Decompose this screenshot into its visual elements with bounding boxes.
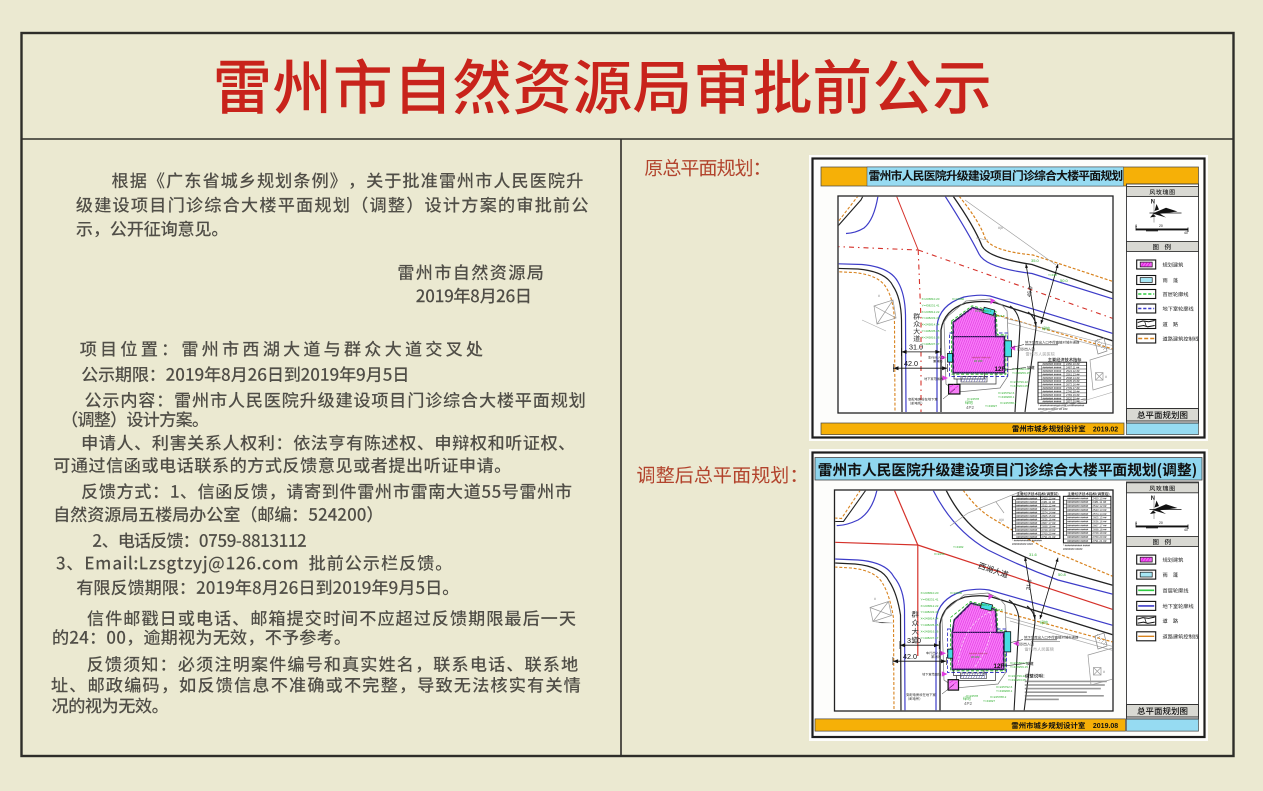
svg-text:Y=438231.41: Y=438231.41: [921, 597, 939, 601]
svg-text:####### #####: ####### #####: [1043, 366, 1062, 370]
svg-text:20: 20: [1159, 224, 1163, 228]
svg-text:42.0: 42.0: [903, 652, 917, 661]
svg-text:2561.13 ##: 2561.13 ##: [1066, 372, 1080, 376]
svg-text:2019.08: 2019.08: [1093, 723, 1118, 730]
svg-text:42.0: 42.0: [904, 359, 918, 368]
svg-text:## ###: ## ###: [971, 655, 980, 659]
svg-text:## ###: ## ###: [974, 359, 983, 363]
svg-text:Y=438263.05: Y=438263.05: [1008, 678, 1026, 682]
svg-text:4P2: 4P2: [966, 405, 975, 410]
svg-text:2019.02: 2019.02: [1093, 426, 1118, 433]
svg-text:########## ####: ########## ####: [1012, 542, 1033, 546]
svg-text:N: N: [1151, 200, 1155, 206]
svg-text:X=245812.22: X=245812.22: [922, 310, 940, 314]
svg-text:X=2458: X=2458: [934, 552, 945, 556]
svg-text:####### #####: ####### #####: [1043, 389, 1062, 393]
svg-text:####### #####: ####### #####: [1043, 386, 1062, 390]
svg-text:2746.18 ##: 2746.18 ##: [1066, 389, 1080, 393]
svg-text:40: 40: [1184, 231, 1188, 235]
svg-text:4P2: 4P2: [964, 701, 973, 706]
svg-text:X=24580: X=24580: [950, 591, 962, 595]
svg-text:#|#: #|#: [999, 518, 1004, 522]
svg-text:X=245810.20: X=245810.20: [921, 591, 939, 595]
svg-text:Y=438268.1: Y=438268.1: [996, 689, 1013, 693]
svg-text:#: #: [878, 294, 880, 298]
svg-text:12F: 12F: [994, 663, 1005, 670]
svg-text:Y=438235.45: Y=438235.45: [922, 329, 940, 333]
svg-text:X=245810.20: X=245810.20: [922, 297, 940, 301]
svg-text:Y=438233.43: Y=438233.43: [921, 610, 939, 614]
svg-text:X=245814.24: X=245814.24: [922, 323, 940, 327]
svg-text:Y=43828.8: Y=43828.8: [990, 314, 1005, 318]
svg-text:Y=438237.47: Y=438237.47: [921, 636, 939, 640]
svg-text:Y=438237.47: Y=438237.47: [922, 342, 940, 346]
svg-text:50.8: 50.8: [1058, 572, 1067, 577]
svg-text:50.0: 50.0: [1060, 278, 1069, 283]
svg-text:Y=438: Y=438: [1048, 273, 1057, 277]
svg-text:2450.10 ##: 2450.10 ##: [1066, 362, 1080, 366]
svg-text:#: #: [1105, 375, 1107, 379]
svg-text:X=24578: X=24578: [967, 397, 979, 401]
svg-text:Y=43828.8: Y=43828.8: [988, 608, 1003, 612]
svg-text:Y=438263.05: Y=438263.05: [1010, 384, 1028, 388]
svg-text:######## #####: ######## #####: [1067, 539, 1088, 543]
svg-text:31.6: 31.6: [1029, 552, 1038, 557]
svg-text:X=245812.22: X=245812.22: [921, 604, 939, 608]
svg-text:X=245806.9: X=245806.9: [975, 309, 992, 313]
svg-text:2524.12 ##: 2524.12 ##: [1066, 369, 1080, 373]
svg-text:20: 20: [1159, 521, 1163, 525]
svg-text:######## #####: ######## #####: [1063, 547, 1083, 551]
svg-text:2791.21 ##: 2791.21 ##: [1092, 539, 1106, 543]
svg-text:Y=43827: Y=43827: [983, 699, 995, 703]
svg-text:Y=438233.43: Y=438233.43: [922, 316, 940, 320]
svg-text:Y=438235.45: Y=438235.45: [921, 623, 939, 627]
svg-text:12F: 12F: [995, 366, 1006, 373]
svg-text:Y=438268.1: Y=438268.1: [998, 395, 1015, 399]
svg-text:2820.20 ##: 2820.20 ##: [1066, 396, 1080, 400]
svg-text:2598.14 ##: 2598.14 ##: [1066, 376, 1080, 380]
svg-text:2709.17 ##: 2709.17 ##: [1066, 386, 1080, 390]
svg-text:####### #####: ####### #####: [1043, 396, 1062, 400]
svg-text:####### #####: ####### #####: [1043, 369, 1062, 373]
svg-text:####### #####: ####### #####: [1043, 393, 1062, 397]
svg-text:X=245816.26: X=245816.26: [922, 335, 940, 339]
svg-text:35.0: 35.0: [1031, 258, 1040, 263]
svg-text:X=245806.9: X=245806.9: [973, 603, 990, 607]
svg-text:####### #####: ####### #####: [1043, 383, 1062, 387]
svg-text:X=245814.24: X=245814.24: [921, 617, 939, 621]
svg-text:Y=438259.15: Y=438259.15: [1012, 371, 1030, 375]
svg-text:#: #: [1103, 670, 1105, 674]
svg-text:Y=43827: Y=43827: [985, 404, 997, 408]
svg-text:2635.15 ##: 2635.15 ##: [1066, 379, 1080, 383]
svg-text:####### #####: ####### #####: [1043, 372, 1062, 376]
svg-text:N: N: [1151, 496, 1155, 502]
svg-text:Y=4382: Y=4382: [953, 545, 964, 549]
svg-text:####### #####: ####### #####: [1043, 362, 1062, 366]
svg-text:Y=438231.41: Y=438231.41: [922, 303, 940, 307]
svg-text:X=245816.26: X=245816.26: [921, 629, 939, 633]
svg-text:####### #####: ####### #####: [1043, 379, 1062, 383]
svg-text:2487.11 ##: 2487.11 ##: [1066, 366, 1080, 370]
svg-text:Y=438259.15: Y=438259.15: [1010, 665, 1028, 669]
svg-text:2672.16 ##: 2672.16 ##: [1066, 383, 1080, 387]
svg-text:2791.21 ##: 2791.21 ##: [1041, 535, 1055, 539]
svg-text:####### #####: ####### #####: [1043, 376, 1062, 380]
svg-text:#: #: [874, 597, 876, 601]
svg-text:X=245788.2: X=245788.2: [1000, 401, 1017, 405]
svg-text:2783.19 ##: 2783.19 ##: [1066, 393, 1080, 397]
svg-text:######## #####: ######## #####: [1016, 535, 1037, 539]
svg-text:#|#: #|#: [998, 226, 1003, 230]
svg-text:40: 40: [1184, 528, 1188, 532]
svg-text:31.0: 31.0: [907, 636, 921, 645]
svg-text:X=24580: X=24580: [952, 297, 964, 301]
